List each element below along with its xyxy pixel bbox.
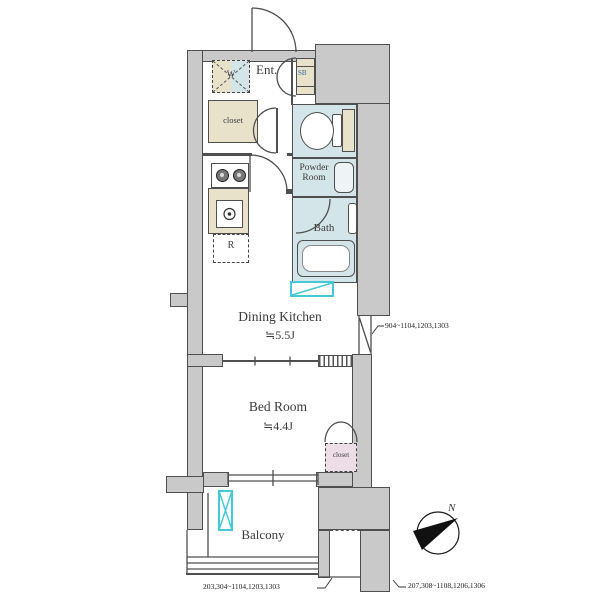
- balcony-label: Balcony: [241, 528, 284, 542]
- dk-door-arc: [250, 155, 287, 192]
- bed-closet-door-left-arc: [325, 422, 341, 442]
- leader-window-right: [372, 326, 384, 334]
- shoe-box-label: SB: [298, 70, 307, 77]
- shoebox-door-lower-arc: [277, 77, 296, 96]
- compass: [413, 512, 459, 554]
- callout-window-right: 904~1104,1203,1303: [385, 321, 449, 330]
- leader-bottom-right: [393, 580, 406, 587]
- callout-bottom-right: 207,308~1108,1206,1306: [408, 581, 485, 590]
- bath-label: Bath: [314, 223, 335, 235]
- callout-bottom-left: 203,304~1104,1203,1303: [203, 582, 280, 591]
- hall-closet-label: closet: [223, 116, 243, 125]
- washer-label: W: [227, 70, 236, 79]
- dk-window-sash-diagonal: [360, 318, 371, 352]
- hall-door-lower-arc: [254, 131, 277, 154]
- counter-diagonal: [292, 283, 332, 295]
- entrance-label: Ent.: [256, 63, 277, 77]
- dining-kitchen-label: Dining Kitchen: [238, 310, 322, 324]
- powder-room-label: Powder Room: [292, 164, 336, 184]
- bed-room-size: ≒4.4J: [263, 420, 293, 433]
- refrigerator-label: R: [228, 241, 235, 252]
- bed-closet-label: closet: [333, 452, 349, 459]
- shoebox-door-upper-arc: [277, 58, 296, 77]
- linework-overlay: [0, 0, 600, 600]
- dining-kitchen-size: ≒5.5J: [265, 329, 295, 342]
- compass-north-label: N: [448, 503, 455, 515]
- sink-faucet-dot: [228, 213, 230, 215]
- hall-door-upper-arc: [254, 108, 277, 131]
- bed-room-label: Bed Room: [249, 400, 307, 414]
- entrance-door-arc: [252, 8, 296, 52]
- leader-bottom-left: [317, 578, 332, 588]
- bed-closet-door-right-arc: [341, 422, 357, 442]
- floor-plan: Ent. SB W closet Powder Room Bath R Dini…: [0, 0, 600, 600]
